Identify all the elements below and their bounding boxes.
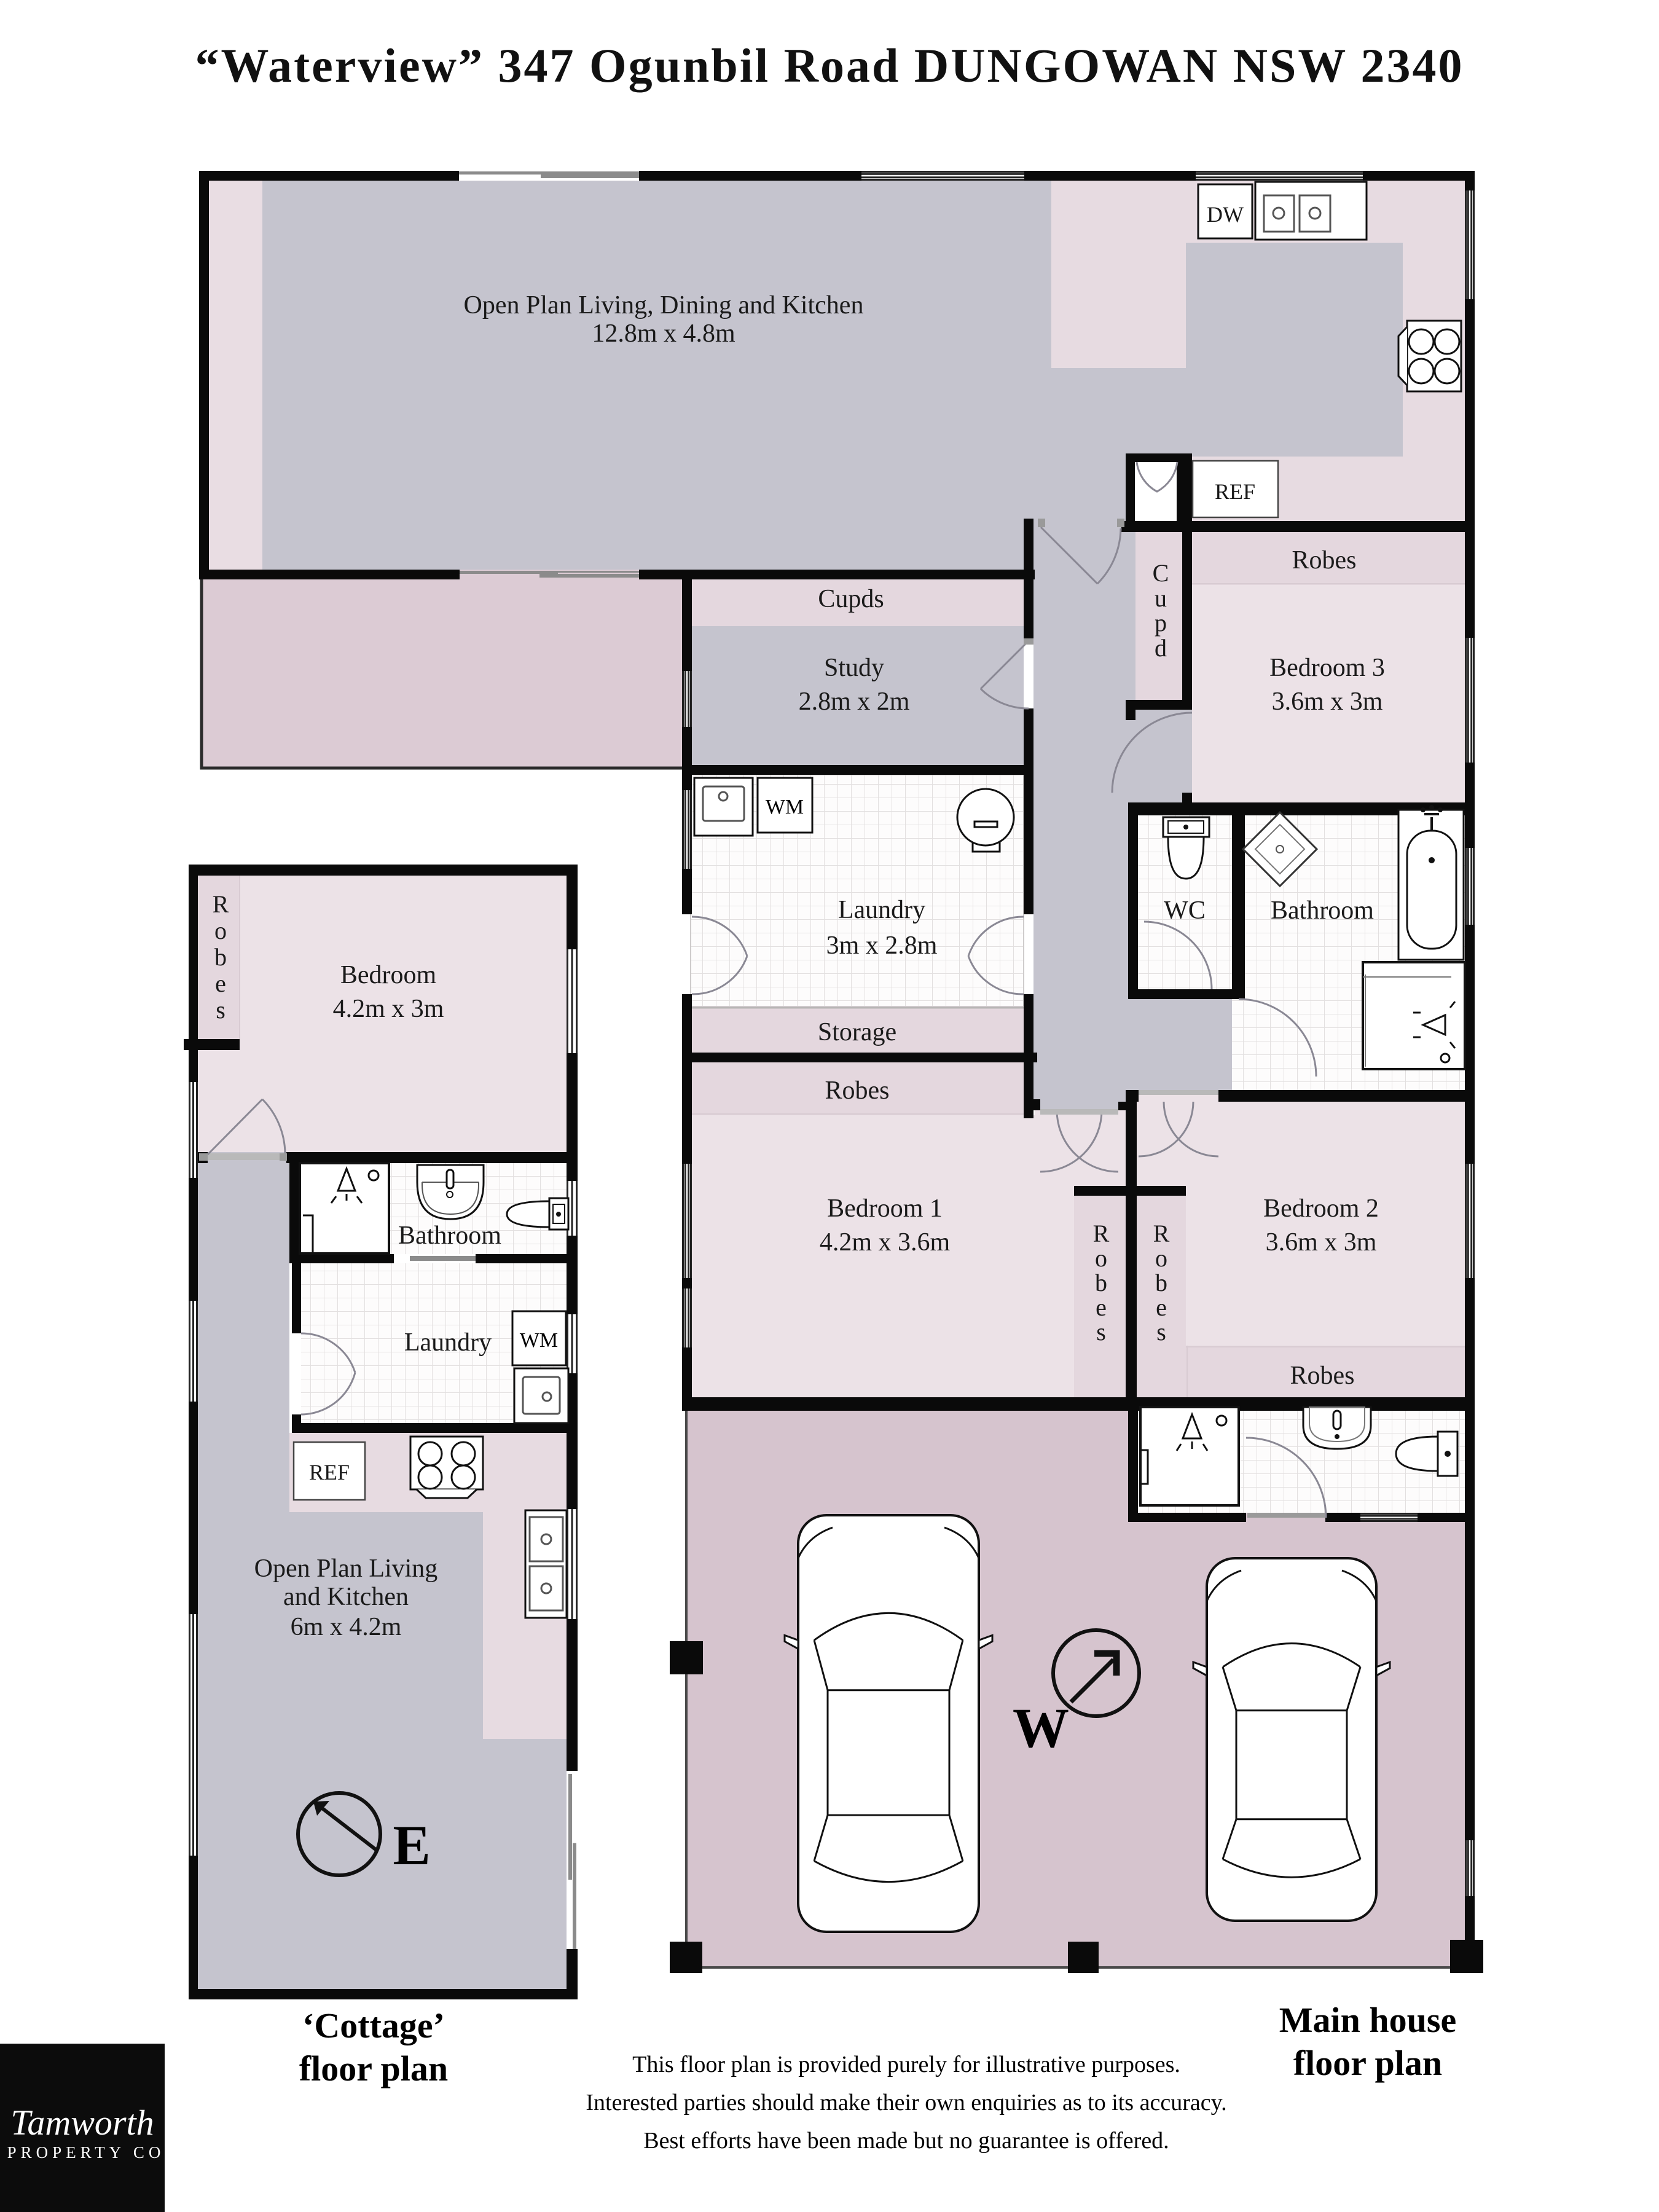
svg-text:e: e (1096, 1293, 1107, 1321)
svg-text:Robes: Robes (825, 1077, 890, 1105)
svg-text:Bedroom 1: Bedroom 1 (827, 1194, 943, 1223)
svg-text:Main house: Main house (1279, 2000, 1456, 2040)
svg-text:R: R (1093, 1220, 1110, 1247)
svg-text:C: C (1153, 559, 1169, 587)
svg-text:Robes: Robes (1290, 1362, 1355, 1390)
svg-text:e: e (1156, 1293, 1167, 1321)
svg-text:Storage: Storage (818, 1018, 896, 1046)
svg-text:3.6m x 3m: 3.6m x 3m (1266, 1228, 1377, 1257)
svg-text:E: E (393, 1814, 430, 1877)
svg-text:R: R (1153, 1220, 1170, 1247)
svg-text:‘Cottage’: ‘Cottage’ (302, 2006, 445, 2045)
svg-text:3m x 2.8m: 3m x 2.8m (826, 931, 938, 960)
svg-text:WM: WM (520, 1329, 558, 1352)
svg-text:12.8m x 4.8m: 12.8m x 4.8m (592, 320, 735, 348)
svg-text:Bedroom: Bedroom (340, 961, 437, 989)
svg-text:b: b (214, 943, 227, 971)
svg-text:b: b (1095, 1269, 1107, 1296)
svg-text:Laundry: Laundry (404, 1328, 492, 1357)
svg-text:s: s (1156, 1318, 1166, 1346)
svg-text:Bathroom: Bathroom (1271, 896, 1374, 925)
svg-text:o: o (214, 917, 227, 944)
svg-text:d: d (1155, 634, 1167, 662)
svg-text:W: W (1013, 1696, 1069, 1759)
svg-text:“Waterview” 347 Ogunbil Road D: “Waterview” 347 Ogunbil Road DUNGOWAN NS… (195, 39, 1464, 92)
svg-text:4.2m x 3.6m: 4.2m x 3.6m (820, 1228, 951, 1257)
svg-text:4.2m x 3m: 4.2m x 3m (333, 995, 444, 1023)
svg-text:Bedroom 3: Bedroom 3 (1269, 654, 1385, 682)
svg-text:o: o (1095, 1244, 1107, 1272)
svg-text:Robes: Robes (1292, 546, 1357, 575)
svg-text:e: e (215, 970, 226, 997)
svg-text:3.6m x 3m: 3.6m x 3m (1272, 688, 1383, 716)
svg-text:WC: WC (1164, 896, 1206, 925)
svg-text:Laundry: Laundry (838, 896, 925, 924)
svg-text:R: R (213, 890, 229, 918)
svg-text:Best efforts have been made bu: Best efforts have been made but no guara… (643, 2128, 1169, 2154)
svg-text:b: b (1155, 1269, 1167, 1296)
svg-text:floor plan: floor plan (299, 2049, 448, 2088)
svg-text:p: p (1155, 609, 1167, 637)
svg-text:Interested parties should make: Interested parties should make their own… (586, 2090, 1226, 2116)
svg-text:Open Plan Living, Dining and K: Open Plan Living, Dining and Kitchen (464, 291, 864, 320)
svg-text:o: o (1155, 1244, 1167, 1272)
svg-text:and Kitchen: and Kitchen (283, 1583, 409, 1611)
svg-text:Study: Study (824, 654, 884, 682)
svg-text:WM: WM (766, 796, 804, 818)
svg-text:Open Plan Living: Open Plan Living (254, 1555, 438, 1583)
svg-text:s: s (216, 996, 226, 1024)
svg-text:DW: DW (1207, 202, 1244, 227)
svg-text:floor plan: floor plan (1293, 2043, 1442, 2083)
svg-text:Tamworth: Tamworth (10, 2103, 154, 2143)
svg-text:REF: REF (1215, 479, 1255, 504)
svg-text:s: s (1096, 1318, 1106, 1346)
svg-text:Bathroom: Bathroom (398, 1222, 501, 1250)
svg-text:PROPERTY CO: PROPERTY CO (7, 2143, 165, 2162)
svg-text:2.8m x 2m: 2.8m x 2m (799, 688, 910, 716)
svg-text:6m x 4.2m: 6m x 4.2m (291, 1613, 402, 1641)
svg-text:REF: REF (309, 1460, 350, 1484)
svg-text:u: u (1155, 584, 1167, 612)
svg-text:Bedroom 2: Bedroom 2 (1263, 1194, 1379, 1223)
svg-text:Cupds: Cupds (818, 585, 884, 613)
svg-text:This floor plan is provided pu: This floor plan is provided purely for i… (632, 2052, 1180, 2077)
